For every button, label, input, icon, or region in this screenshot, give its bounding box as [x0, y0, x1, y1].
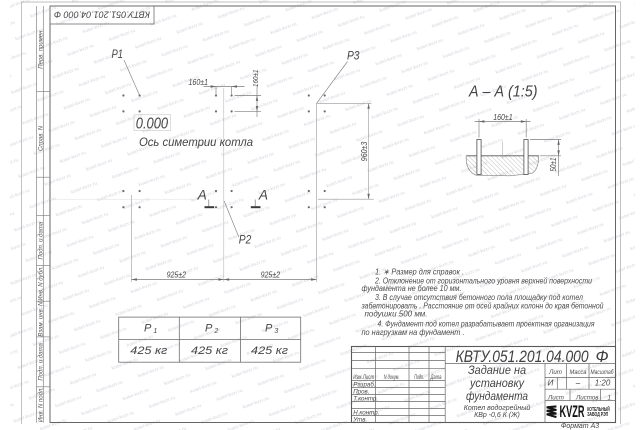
svg-text:Подп.: Подп. — [414, 374, 424, 381]
svg-text:по нагрузкам на фундамент .: по нагрузкам на фундамент . — [362, 328, 465, 337]
svg-text:Ось симетрии котла: Ось симетрии котла — [139, 135, 253, 149]
svg-text:1: 1 — [608, 395, 611, 402]
svg-text:А – А (1:5): А – А (1:5) — [468, 84, 537, 101]
svg-text:50±1: 50±1 — [549, 158, 558, 172]
svg-text:Лист: Лист — [547, 395, 564, 402]
svg-text:425 кг: 425 кг — [130, 345, 168, 357]
svg-text:А: А — [258, 188, 268, 203]
svg-text:Т.контр.: Т.контр. — [353, 396, 378, 403]
svg-text:1. ∗ Размер для справок .: 1. ∗ Размер для справок . — [375, 268, 464, 277]
svg-text:Масштаб: Масштаб — [591, 369, 614, 376]
svg-text:И: И — [548, 379, 554, 388]
svg-text:КВТУ.051.201.04.000 Ф: КВТУ.051.201.04.000 Ф — [54, 8, 150, 19]
svg-text:160±1: 160±1 — [251, 70, 260, 88]
svg-text:Р3: Р3 — [347, 49, 360, 63]
svg-text:Дата: Дата — [430, 374, 442, 381]
svg-text:925±2: 925±2 — [261, 270, 281, 279]
svg-text:установку: установку — [469, 378, 525, 390]
svg-text:Масса: Масса — [570, 369, 588, 376]
svg-text:KVZR: KVZR — [560, 403, 585, 421]
svg-text:Пров.: Пров. — [353, 389, 369, 396]
svg-text:Задание на: Задание на — [468, 365, 526, 377]
svg-text:подушки 500 мм.: подушки 500 мм. — [365, 310, 428, 319]
svg-text:Формат А3: Формат А3 — [561, 423, 599, 430]
svg-text:Листов: Листов — [575, 395, 599, 402]
svg-text:925±2: 925±2 — [167, 270, 187, 279]
svg-text:960±3: 960±3 — [360, 141, 369, 161]
svg-text:Изм.Лист: Изм.Лист — [353, 374, 374, 381]
svg-text:КВр -0,6 К (Ж): КВр -0,6 К (Ж) — [474, 412, 520, 419]
svg-text:Взам. инв. N: Взам. инв. N — [38, 301, 44, 337]
svg-text:Р1: Р1 — [112, 47, 124, 61]
svg-text:Подп. и дата: Подп. и дата — [38, 342, 44, 380]
svg-text:Р2: Р2 — [239, 233, 252, 247]
svg-text:425 кг: 425 кг — [191, 345, 229, 357]
svg-text:–: – — [575, 379, 581, 388]
svg-text:фундамента не более 10 мм.: фундамента не более 10 мм. — [362, 284, 462, 293]
svg-text:Справ. N: Справ. N — [38, 125, 44, 151]
svg-text:Инв. N подл.: Инв. N подл. — [38, 387, 44, 422]
svg-text:ЗАВОД РЭП: ЗАВОД РЭП — [587, 412, 608, 418]
svg-text:425 кг: 425 кг — [251, 345, 289, 357]
svg-text:Утв.: Утв. — [352, 416, 367, 423]
svg-text:N докум.: N докум. — [384, 374, 400, 381]
svg-text:КВТУ.051.201.04.000: КВТУ.051.201.04.000 — [456, 348, 590, 366]
svg-text:Инв. N дубл.: Инв. N дубл. — [38, 266, 44, 301]
svg-text:фундамента: фундамента — [466, 391, 528, 403]
svg-text:160±1: 160±1 — [189, 78, 209, 87]
svg-text:Подп. и дата: Подп. и дата — [38, 221, 44, 259]
svg-text:Котел водогрейный: Котел водогрейный — [464, 404, 531, 412]
svg-text:Перв. примен.: Перв. примен. — [38, 29, 44, 69]
svg-text:160±1: 160±1 — [493, 113, 513, 122]
svg-text:Разраб.: Разраб. — [353, 382, 375, 389]
svg-text:1:20: 1:20 — [595, 379, 611, 388]
svg-text:Лит: Лит — [548, 369, 562, 376]
svg-text:А: А — [197, 188, 207, 203]
svg-text:Ф: Ф — [596, 348, 609, 366]
svg-text:0.000: 0.000 — [136, 116, 168, 133]
